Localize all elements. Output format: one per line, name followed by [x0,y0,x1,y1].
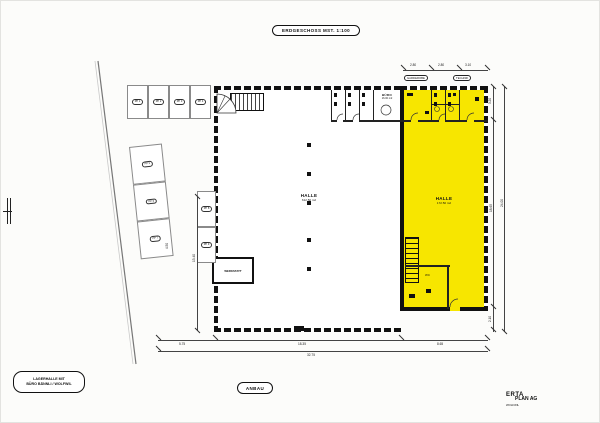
dim-line-bottom-total [158,351,488,352]
partition [459,90,460,121]
drawing-title: ERDGESCHOSS MST. 1:100 [272,25,360,36]
wc-fixture [426,289,431,293]
wc-fixture [348,102,351,106]
wc-fixture [448,102,451,106]
dim-value: 18.65 [489,204,493,212]
wc-fixture [448,93,451,97]
hall-main-area: 612.50 m2 [290,198,328,202]
werkstatt-room: WERKSTATT [212,257,254,284]
dim-value: 5.75 [179,342,185,346]
dim-line-bottom [158,340,488,341]
partition [445,90,446,121]
partition [359,90,360,121]
door-gap [411,120,418,122]
wc-room-label: WC [425,273,430,277]
parking-stall-label: PP 4 [195,99,206,105]
partition [331,90,332,121]
logo-line2: PLAN AG [515,396,537,402]
parking-stall: PP 9 [197,227,216,263]
wc-fixture [334,93,337,97]
wc-fixture [334,102,337,106]
dim-value: 3.20 [488,98,492,104]
parking-stall-label: PP 1 [132,99,143,105]
parking-stall-label: PP 3 [174,99,185,105]
fixture [453,93,456,96]
wall-bottom-new [400,307,488,311]
dim-value: 4.50 [165,243,169,249]
parking-stall-label: PP 8 [201,206,212,212]
parking-column-wall: PP 8 PP 9 [197,191,216,263]
partition [345,90,346,121]
dim-value: 2.80 [438,63,444,67]
parking-stall-label: PP 7 [150,235,161,242]
page-edge-mark [3,211,12,212]
parking-stall: PP 1 [127,85,148,119]
stair-new [405,237,419,283]
parking-stall: PP 7 [137,218,174,259]
dim-value: 3.10 [465,63,471,67]
wc-fixture [409,294,415,298]
wc-fixture [434,102,437,106]
column [307,238,311,242]
hall-new-label: HALLE 172.50 m2 [425,196,463,205]
parking-stall: PP 4 [190,85,211,119]
dim-value: 2.80 [410,63,416,67]
parking-stall: PP 8 [197,191,216,227]
dim-value: 13.40 [192,254,196,262]
column [307,267,311,271]
parking-stall-label: PP 2 [153,99,164,105]
wc-fixture [348,93,351,97]
buero-label: BÜRO 16.00 m2 [375,93,399,100]
dim-value: 32.75 [307,353,315,357]
wall-top-new [400,86,488,90]
technik-label: TECHNIK [453,75,471,81]
technik-fixture [475,97,479,101]
fixture [425,111,429,114]
door-gap [439,120,445,122]
drawing-sheet: ERDGESCHOSS MST. 1:100 [0,0,600,423]
wc-fixture [362,102,365,106]
column [307,143,311,147]
dim-line-right [493,86,494,332]
door-main-south [294,326,304,331]
werkstatt-label: WERKSTATT [224,269,241,273]
wc-room-wall [405,265,450,267]
parking-stall-label: PP 9 [201,242,212,248]
parking-stall: PP 5 [129,144,166,185]
parking-stall: PP 3 [169,85,190,119]
hall-main-label: HALLE 612.50 m2 [290,193,328,202]
wall-bottom-main [214,328,404,332]
anbau-label: ANBAU [237,382,273,394]
dim-line-right-total [504,86,505,332]
dim-value: 8.65 [437,342,443,346]
parking-stall-label: PP 5 [142,161,153,168]
door-gap [467,120,474,122]
column [307,172,311,176]
logo-block: ERTA PLAN AG WOLFWIL [506,392,537,407]
project-label-line2: BÜRO BÄNNLI / WOLFWIL [26,382,71,387]
door-gap [353,120,359,122]
door-gap-new [450,307,460,311]
partition [373,90,374,121]
door-gap [337,120,343,122]
dim-line-top [403,70,488,71]
parking-stall: PP 2 [148,85,169,119]
wc-fixture [362,93,365,97]
hall-new-area: 172.50 m2 [425,201,463,205]
dim-value: 24.00 [500,199,504,207]
parking-stall-label: PP 6 [146,198,157,205]
wall-top-main [214,86,403,90]
buero-area: 16.00 m2 [375,97,399,100]
dim-value: 2.10 [488,316,492,322]
dim-value: 18.35 [298,342,306,346]
parking-row-top: PP 1 PP 2 PP 3 PP 4 [127,85,211,119]
parking-stall: PP 6 [133,181,170,222]
bench-fixture [407,93,413,96]
stair-main [230,93,264,111]
wc-room-wall [447,265,449,309]
garderobe-label: GARDEROBE [404,75,428,81]
partition [431,90,432,121]
dim-line-left [197,197,198,331]
wc-fixture [434,93,437,97]
logo-line3: WOLFWIL [506,403,537,407]
project-label-box: LAGERHALLE MIT BÜRO BÄNNLI / WOLFWIL [13,371,85,393]
hall-main-floor [217,90,400,328]
